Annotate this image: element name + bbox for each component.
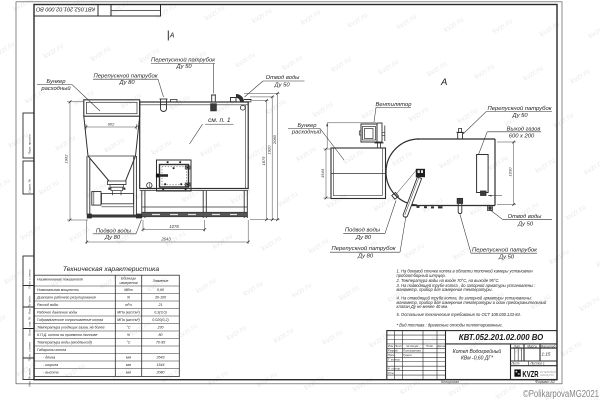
svg-text:Наименование показателя: Наименование показателя [37,278,83,282]
svg-text:расходный: расходный [291,129,322,136]
svg-text:70-95: 70-95 [156,341,165,345]
svg-text:1:15: 1:15 [542,352,551,357]
svg-text:2080: 2080 [272,134,277,145]
svg-text:Утв.: Утв. [388,371,395,375]
svg-text:0,020(0,2): 0,020(0,2) [152,318,168,322]
svg-text:м³/ч: м³/ч [125,303,132,307]
svg-text:Котел Водогрейный: Котел Водогрейный [453,348,502,355]
svg-text:Ду 80: Ду 80 [357,253,374,259]
svg-text:1962: 1962 [64,154,69,164]
svg-text:Масштаб: Масштаб [541,344,556,348]
svg-text:А: А [440,77,447,88]
svg-text:°С: °С [126,341,130,345]
svg-text:А: А [169,33,175,40]
svg-text:Ду 80: Ду 80 [118,80,135,86]
svg-text:Выход газов: Выход газов [507,126,541,132]
svg-text:Ду 50: Ду 50 [517,221,534,227]
svg-text:измерения: измерения [120,281,138,285]
svg-text:Расход воды: Расход воды [37,303,59,307]
svg-text:КВТ.052.201.02.000 ВО: КВТ.052.201.02.000 ВО [36,6,95,12]
svg-text:Н. контр.: Н. контр. [388,367,401,371]
svg-text:Пров.: Пров. [388,353,396,357]
svg-text:Ду 50: Ду 50 [511,113,528,119]
svg-text:клапан Ду не менее 40 мм.: клапан Ду не менее 40 мм. [397,304,449,309]
svg-text:Габариты котла: Габариты котла [37,348,66,352]
svg-text:2643: 2643 [160,236,171,241]
svg-text:см. п. 1: см. п. 1 [208,117,231,124]
svg-text:Перепускной патрубок: Перепускной патрубок [151,57,215,64]
svg-text:Отвод воды: Отвод воды [508,214,543,220]
svg-text:Перв. примен.: Перв. примен. [28,134,32,155]
svg-text:5. Остальные технические треб: 5. Остальные технические требования по О… [397,312,521,317]
svg-text:Техническая характеристика: Техническая характеристика [63,266,159,273]
svg-text:Значение: Значение [153,279,169,283]
svg-text:1920: 1920 [267,145,272,155]
svg-text:МПа (кгс/см²): МПа (кгс/см²) [117,311,140,315]
svg-text:Инв. № подл.: Инв. № подл. [28,367,32,386]
svg-text:Поликарпова: Поликарпова [403,349,421,353]
svg-text:Рабочее давление воды: Рабочее давление воды [37,311,78,315]
svg-text:мм: мм [126,363,131,367]
svg-text:Отвод воды: Отвод воды [266,75,301,81]
svg-text:Разраб.: Разраб. [388,349,399,353]
svg-text:1544: 1544 [320,168,325,178]
svg-text:Изм: Изм [388,344,393,348]
svg-text:2643: 2643 [156,356,165,360]
svg-text:Диапазон рабочего регулировани: Диапазон рабочего регулирования [36,296,96,300]
svg-text:°С: °С [126,326,130,330]
svg-text:0,3(3,0): 0,3(3,0) [154,311,166,315]
svg-text:Перепускной патрубок: Перепускной патрубок [94,73,158,80]
svg-text:©PolikarpovaMG2021: ©PolikarpovaMG2021 [523,389,599,400]
svg-text:Перепускной патрубок: Перепускной патрубок [472,247,537,254]
svg-text:Температура уходящих газов, не: Температура уходящих газов, не более [37,326,105,330]
svg-text:Лит.: Лит. [513,344,522,348]
svg-text:К.П.Д. котла на приемном топли: К.П.Д. котла на приемном топливе [37,333,97,337]
svg-text:Лист: Лист [510,362,520,366]
svg-text:- высота: - высота [43,371,58,375]
svg-text:Перепускной патрубок: Перепускной патрубок [332,245,396,252]
svg-text:1030: 1030 [508,167,513,177]
svg-text:1078: 1078 [169,224,179,229]
svg-text:Бункер: Бункер [47,79,67,85]
svg-text:манометр, прибор для измерения: манометр, прибор для измерения температу… [397,287,493,292]
svg-text:КВм -0,60 ДГ*: КВм -0,60 ДГ* [461,356,494,362]
svg-text:- ширина: - ширина [43,363,58,367]
svg-text:Копировал: Копировал [441,380,459,384]
svg-text:902: 902 [108,122,115,127]
svg-text:Гущин: Гущин [403,353,412,357]
svg-text:Т. контр.: Т. контр. [388,358,401,362]
svg-text:МВт: МВт [124,288,132,292]
svg-text:80: 80 [159,333,163,337]
svg-text:Перепускной патрубок: Перепускной патрубок [488,105,552,112]
svg-text:Температура воды (вход/выход): Температура воды (вход/выход) [37,341,92,345]
svg-text:Ду 50: Ду 50 [498,255,515,261]
svg-text:2080: 2080 [156,371,165,375]
svg-text:Масса: Масса [527,344,537,348]
svg-text:Подвод воды: Подвод воды [345,228,381,234]
svg-text:Бункер: Бункер [298,123,318,129]
svg-text:Справ. №: Справ. № [28,178,32,193]
svg-text:* Вид топлива : древесные от: * Вид топлива : древесные отходы пеллети… [397,323,503,328]
svg-text:0,60: 0,60 [157,288,164,292]
svg-text:Листов 1: Листов 1 [529,362,544,366]
svg-text:- длина: - длина [43,356,55,360]
svg-text:30-100: 30-100 [155,296,166,300]
svg-text:Подп.: Подп. [426,344,434,348]
svg-text:мм: мм [126,356,131,360]
svg-text:230: 230 [157,326,164,330]
svg-text:Взам. инв. №: Взам. инв. № [28,316,32,336]
svg-text:Лист: Лист [394,344,403,348]
svg-text:Инв. № дубл.: Инв. № дубл. [28,295,32,314]
svg-text:Ду 50: Ду 50 [175,64,192,70]
svg-text:Ду 80: Ду 80 [104,235,121,241]
svg-text:Номинальная мощность: Номинальная мощность [37,288,79,292]
svg-text:Ду 80: Ду 80 [355,235,372,241]
svg-text:Подп. и дата: Подп. и дата [28,269,32,289]
svg-text:Подвод воды: Подвод воды [96,228,132,234]
svg-text:КВТ.052.201.02.000 ВО: КВТ.052.201.02.000 ВО [459,333,543,342]
svg-text:ЗАВОД РУС: ЗАВОД РУС [540,374,554,377]
svg-text:расходный: расходный [40,85,71,92]
svg-text:МПа (кгс/см²): МПа (кгс/см²) [117,318,140,322]
svg-text:Ду 50: Ду 50 [273,82,290,88]
svg-text:1544: 1544 [157,363,165,367]
svg-text:Вентилятор: Вентилятор [376,102,413,108]
svg-text:Гидравлическое сопротивление к: Гидравлическое сопротивление котла [37,318,103,322]
svg-text:№ докум.: № докум. [406,344,419,348]
svg-text:Подп. и дата: Подп. и дата [28,342,32,362]
svg-text:600 х 200: 600 х 200 [509,134,535,140]
svg-text:мм: мм [126,371,131,375]
svg-text:Дата: Дата [436,344,445,348]
svg-text:21: 21 [158,303,163,307]
svg-text:KVZR: KVZR [522,369,538,379]
svg-text:Формат А2: Формат А2 [535,380,555,384]
svg-text:1875: 1875 [261,156,266,166]
